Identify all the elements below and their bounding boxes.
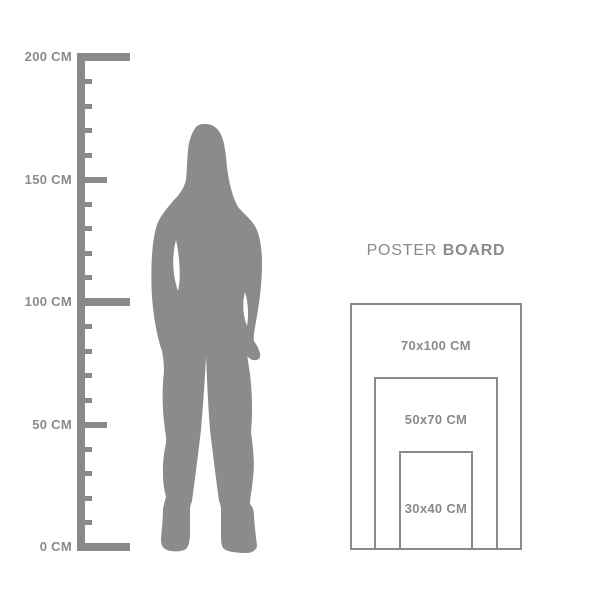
- poster-board-title-light: POSTER: [367, 242, 438, 259]
- board-size-label-50x70: 50x70 CM: [374, 412, 498, 428]
- poster-board-title: POSTERBOARD: [336, 242, 536, 260]
- person-silhouette-body: [151, 124, 262, 553]
- size-guide-canvas: 200 CM150 CM100 CM50 CM0 CM POSTERBOARD …: [0, 0, 600, 600]
- board-size-label-70x100: 70x100 CM: [350, 338, 523, 354]
- poster-board-title-bold: BOARD: [443, 242, 506, 259]
- board-size-label-30x40: 30x40 CM: [399, 501, 473, 517]
